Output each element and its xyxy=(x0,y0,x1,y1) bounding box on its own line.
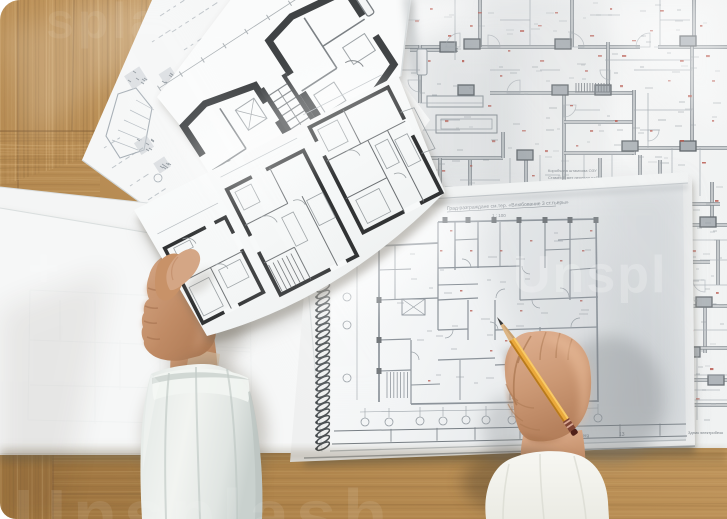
svg-text:Unsplash: Unsplash xyxy=(14,476,394,519)
svg-text:+: + xyxy=(28,238,60,298)
svg-text:Здник электробезо: Здник электробезо xyxy=(688,430,724,435)
svg-text:splash: splash xyxy=(46,0,228,49)
svg-text:Unspl: Unspl xyxy=(513,246,667,304)
